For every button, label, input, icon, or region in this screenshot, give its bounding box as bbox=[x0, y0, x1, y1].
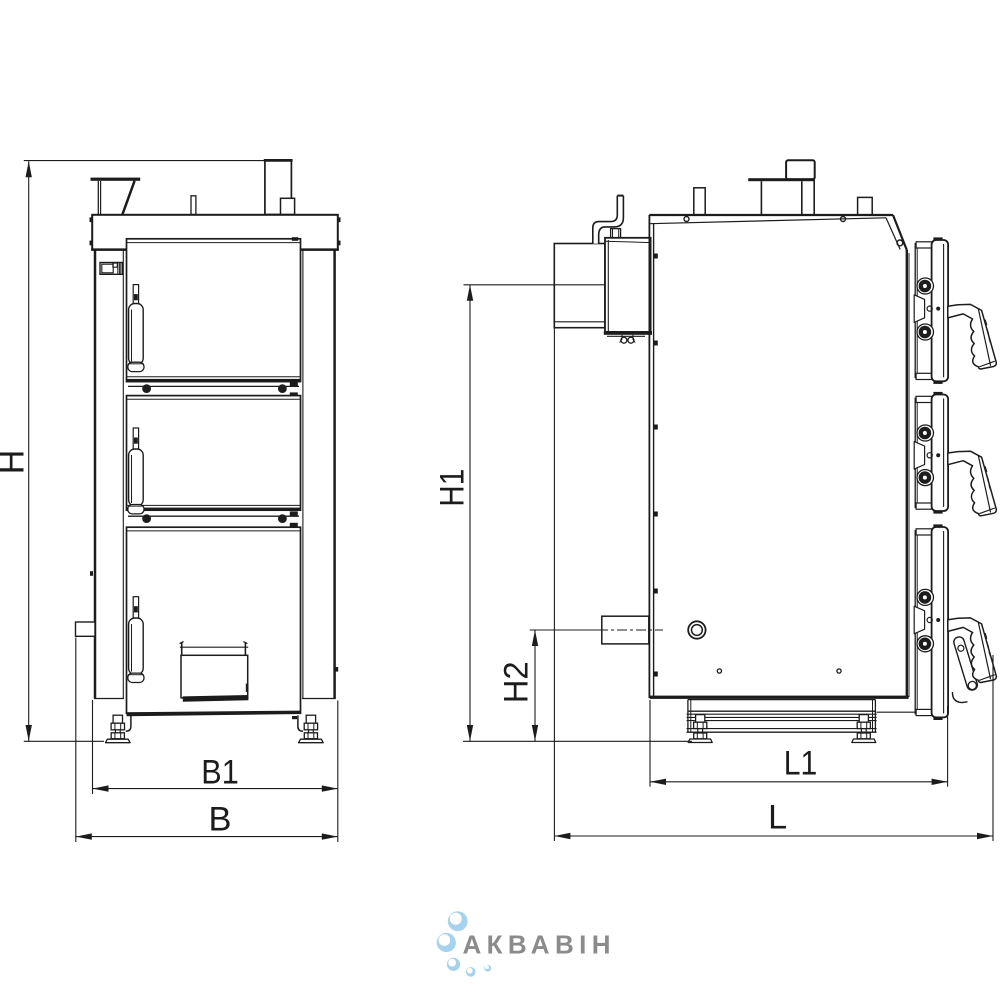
svg-text:H: H bbox=[0, 450, 32, 475]
svg-text:L: L bbox=[768, 799, 787, 837]
svg-text:L1: L1 bbox=[784, 745, 818, 783]
svg-text:H2: H2 bbox=[498, 661, 536, 703]
svg-text:B: B bbox=[209, 801, 232, 839]
svg-text:H1: H1 bbox=[434, 469, 472, 507]
svg-text:B1: B1 bbox=[201, 754, 239, 792]
